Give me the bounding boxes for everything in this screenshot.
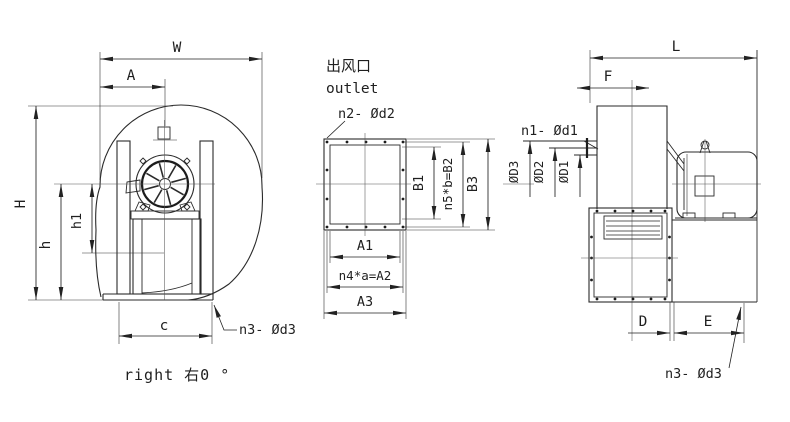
outlet-title-english: outlet (326, 81, 378, 97)
pedestal-inner-lines (142, 219, 192, 294)
dim-label-L: L (672, 39, 681, 55)
dim-label-E: E (704, 314, 713, 330)
engineering-drawing-sheet: W A H h h1 c n3- Ød3 right 右0 ° 出风口 outl… (0, 0, 790, 422)
outlet-title-chinese: 出风口 (326, 57, 371, 75)
dim-label-B1: B1 (411, 175, 427, 191)
dim-label-F: F (604, 69, 613, 85)
dim-label-H: H (13, 200, 29, 209)
terminal-box (695, 176, 714, 196)
dim-label-A2: n4*a=A2 (339, 268, 392, 283)
inlet-box-bolt-holes (590, 210, 671, 301)
dim-label-D1: ØD1 (556, 161, 571, 184)
support-post-left (117, 141, 130, 294)
dim-label-A1: A1 (357, 238, 373, 254)
bolt-note-n2: n2- Ød2 (338, 106, 395, 122)
impeller-louver-lines (606, 221, 660, 235)
dim-label-W: W (173, 40, 182, 56)
dim-label-A: A (127, 68, 136, 84)
dim-label-D: D (639, 314, 648, 330)
bearing-plate (131, 211, 199, 219)
transition-cone (667, 141, 684, 210)
inlet-box-inner (594, 213, 667, 297)
n3-leader-right (729, 307, 741, 368)
right-view-motor-elevation: n1- Ød1 ØD3 ØD2 ØD1 (503, 39, 761, 382)
dim-label-h: h (38, 241, 54, 250)
dim-label-c: c (160, 318, 169, 334)
support-post-right (200, 141, 213, 294)
bolt-note-n1: n1- Ød1 (521, 123, 578, 139)
pedestal (133, 219, 201, 294)
dim-label-D3: ØD3 (506, 161, 521, 184)
impeller-louver-box (604, 216, 662, 239)
motor-foot-right (723, 213, 735, 218)
dim-label-B3: B3 (465, 176, 481, 192)
motor-base-lines (672, 218, 757, 220)
motor-body (677, 152, 757, 218)
shaft-nub (158, 127, 170, 139)
bolt-note-n3-left: n3- Ød3 (239, 322, 296, 338)
w-extension-lines (100, 52, 262, 180)
n3-leader-left (214, 305, 237, 330)
fan-dimension-drawing: W A H h h1 c n3- Ød3 right 右0 ° 出风口 outl… (0, 0, 790, 422)
left-view-side-elevation: W A H h h1 c n3- Ød3 right 右0 ° (13, 40, 296, 384)
bolt-note-n3-right: n3- Ød3 (665, 366, 722, 382)
dim-label-B2: n5*b=B2 (440, 158, 455, 211)
dim-label-h1: h1 (69, 213, 85, 229)
n2-leader (327, 121, 345, 138)
motor-foot-left (683, 213, 695, 218)
middle-view-outlet-flange: 出风口 outlet n2- Ød2 B1 n5*b=B2 B3 A1 n4*a… (316, 57, 495, 319)
dim-label-D2: ØD2 (531, 161, 546, 184)
inlet-box-outer (589, 208, 672, 302)
side-mount-tab (126, 180, 140, 193)
dim-label-A3: A3 (357, 294, 373, 310)
view-caption-right-0deg: right 右0 ° (124, 366, 230, 384)
